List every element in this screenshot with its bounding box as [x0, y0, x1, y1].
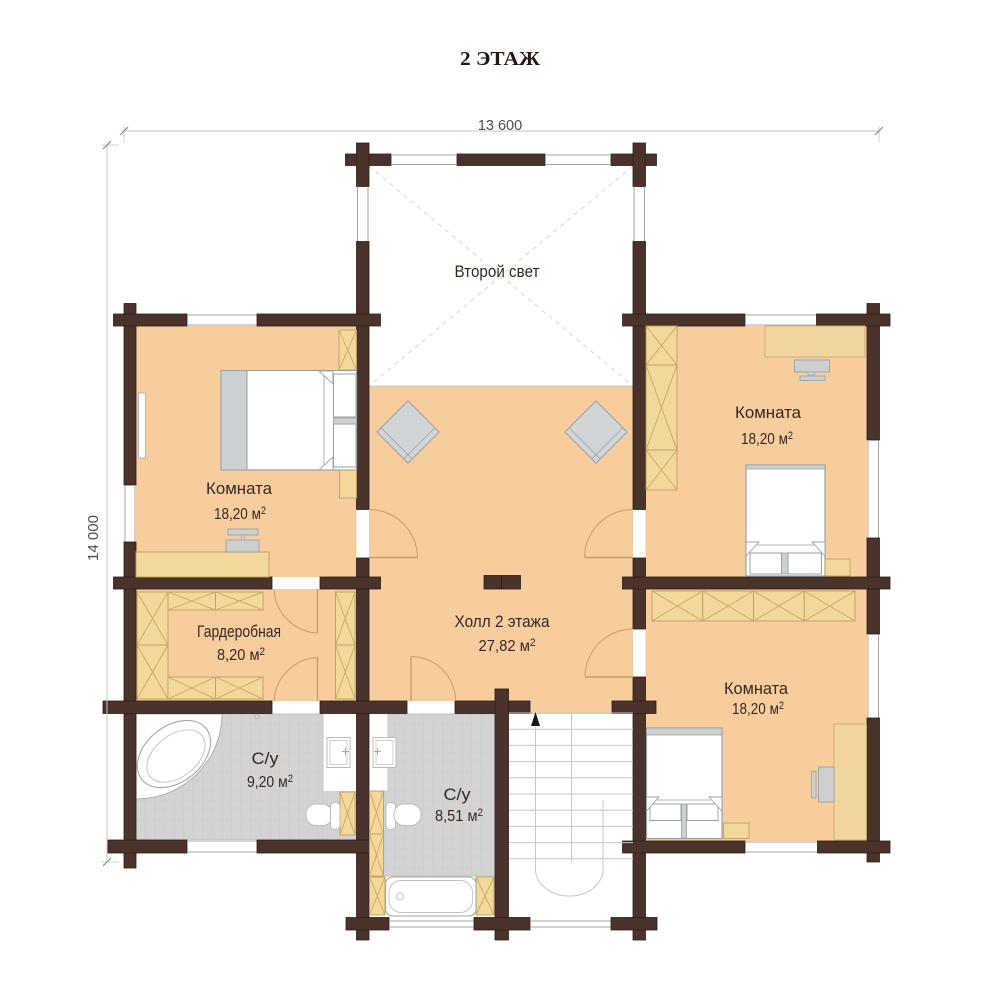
svg-text:Комната: Комната [206, 480, 273, 498]
svg-text:Холл 2 этажа: Холл 2 этажа [455, 613, 551, 631]
svg-text:13 600: 13 600 [478, 118, 522, 134]
svg-text:Гардеробная: Гардеробная [197, 623, 281, 641]
svg-text:8,20 м2: 8,20 м2 [217, 646, 265, 664]
svg-text:9,20 м2: 9,20 м2 [247, 773, 293, 791]
svg-text:8,51 м2: 8,51 м2 [435, 807, 483, 825]
svg-text:Второй свет: Второй свет [455, 263, 540, 281]
svg-text:Комната: Комната [724, 680, 789, 698]
svg-text:27,82 м2: 27,82 м2 [479, 637, 536, 655]
svg-text:Комната: Комната [735, 404, 802, 422]
svg-text:18,20 м2: 18,20 м2 [741, 430, 793, 448]
svg-text:14 000: 14 000 [85, 515, 102, 561]
svg-text:С/у: С/у [444, 786, 472, 804]
svg-text:18,20 м2: 18,20 м2 [732, 700, 784, 718]
svg-text:18,20 м2: 18,20 м2 [214, 505, 266, 523]
svg-text:С/у: С/у [252, 750, 280, 768]
svg-text:2 ЭТАЖ: 2 ЭТАЖ [460, 48, 540, 70]
